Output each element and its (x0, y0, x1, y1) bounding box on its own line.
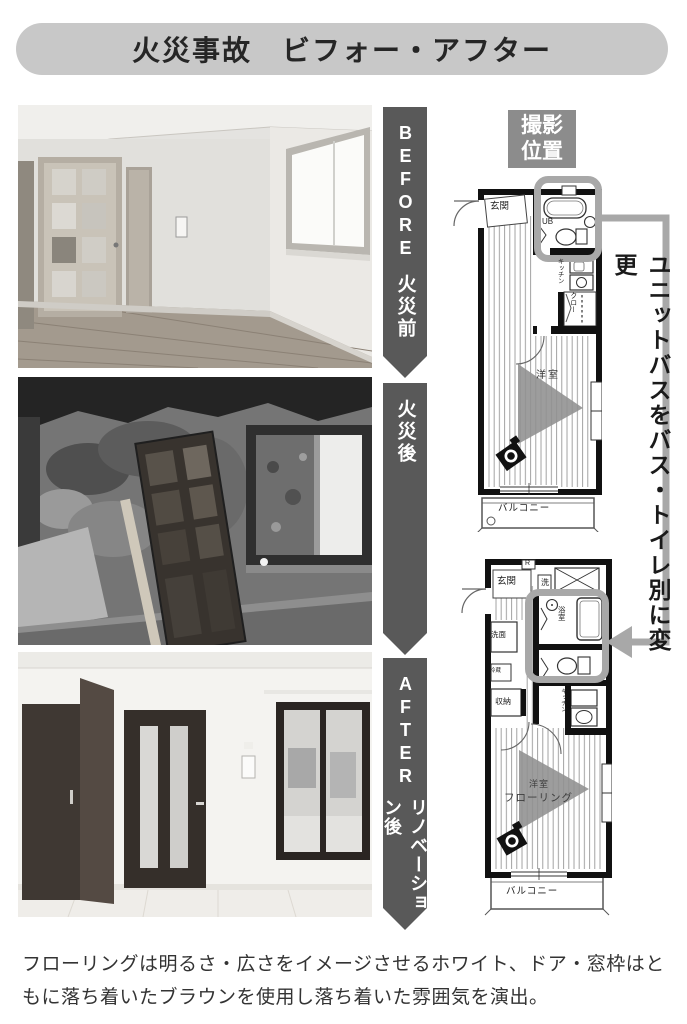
arrow-after-text: AFTER リノベーション後 (392, 674, 418, 930)
fp1-balcony-label: バルコニー (498, 504, 550, 514)
arrow-after-ja: リノベーション後 (379, 798, 431, 930)
closet-outline (558, 292, 596, 326)
fp2-room-label: 洋室 (529, 780, 549, 790)
fp2-flooring-label: フローリング (504, 793, 573, 805)
window (264, 690, 372, 860)
arrow-before-en: BEFORE (395, 123, 416, 261)
fp2-fridge-label: 冷蔵 (490, 668, 501, 674)
fp2-wash-label: 洗面 (491, 631, 506, 639)
fp2-laundry-label: 洗 (541, 579, 549, 588)
intercom (242, 756, 255, 778)
photo-after-fire (18, 377, 372, 645)
caption-line-2: もに落ち着いたブラウンを使用し落ち着いた雰囲気を演出。 (22, 981, 667, 1014)
caption-line-1: フローリングは明るさ・広さをイメージさせるホワイト、ドア・窓枠はと (22, 948, 667, 981)
window (286, 127, 370, 261)
entrance-door (124, 710, 206, 888)
arrow-fire-text: 火災後 (392, 399, 419, 655)
fp1-kitchen-label: キッチン (556, 258, 563, 292)
arrow-before-text: BEFORE 火災前 (392, 123, 419, 378)
paneled-door (38, 157, 122, 317)
arrow-after: AFTER リノベーション後 (383, 658, 427, 930)
intercom (176, 217, 187, 237)
camera-position-label: 撮影位置 (508, 110, 576, 168)
fp1-unit-bath-label: UB (542, 218, 553, 227)
caption: フローリングは明るさ・広さをイメージさせるホワイト、ドア・窓枠はと もに落ち着い… (22, 948, 667, 1015)
fp2-entrance-label: 玄関 (497, 577, 516, 587)
renovation-note: ユニットバスをバス・トイレ別に変更 (607, 253, 675, 653)
fp1-entrance-label: 玄関 (490, 202, 509, 212)
arrow-fire-ja: 火災後 (392, 399, 419, 465)
fp2-storage-label: 収納 (495, 698, 511, 707)
photo-after-renovation (18, 652, 372, 917)
photo-before-fire (18, 105, 372, 368)
page-title: 火災事故 ビフォー・アフター (16, 23, 668, 75)
closet-door (22, 704, 80, 900)
fp1-room-label: 洋室 (536, 370, 560, 381)
arrow-before-ja: 火災前 (392, 274, 419, 340)
arrow-before: BEFORE 火災前 (383, 107, 427, 378)
fp2-bath-label: 浴室 (557, 606, 565, 626)
fp2-meter-label: R (525, 560, 530, 568)
arrow-after-en: AFTER (395, 674, 416, 789)
fp2-balcony-label: バルコニー (506, 887, 558, 897)
page: 火災事故 ビフォー・アフター (0, 0, 687, 1024)
highlight-separate-bath-toilet (525, 589, 609, 683)
fp1-closet-label: クロー (569, 292, 577, 324)
arrow-fire: 火災後 (383, 383, 427, 655)
burnt-window (246, 425, 372, 573)
fp2-kitchen-label: キッチン (559, 688, 566, 718)
kitchen-fixtures (570, 260, 593, 290)
